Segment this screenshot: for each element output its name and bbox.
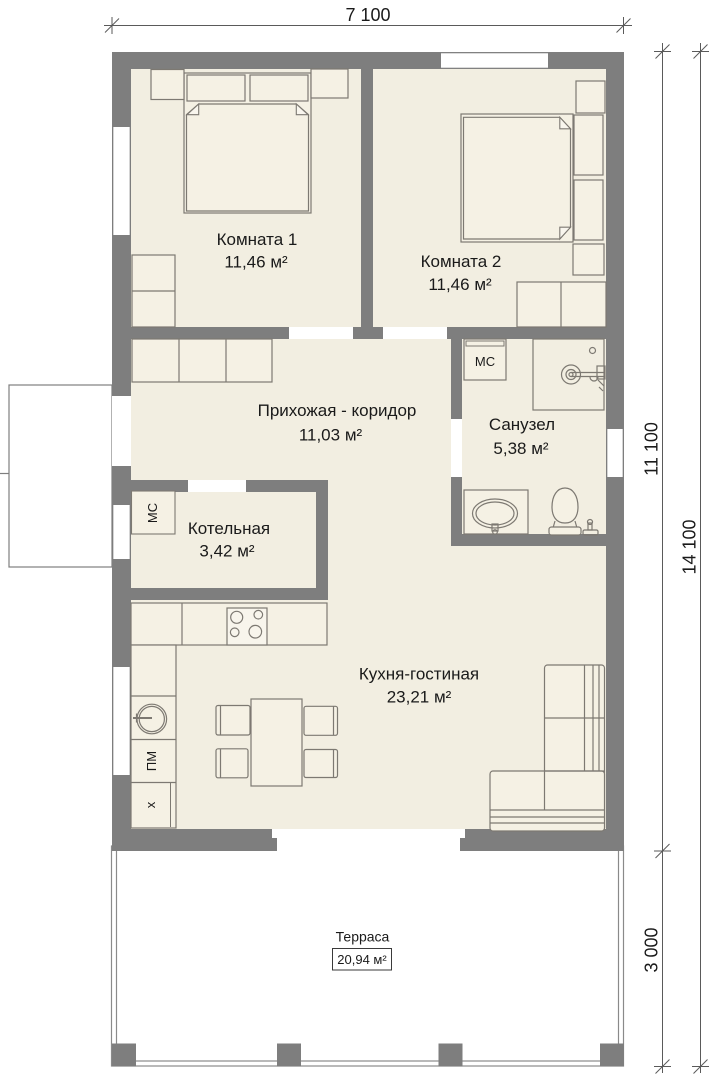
svg-text:7 100: 7 100 [345, 5, 390, 25]
svg-text:Комната 1: Комната 1 [217, 230, 298, 249]
svg-text:Терраса: Терраса [336, 929, 390, 945]
svg-text:3,42 м²: 3,42 м² [199, 542, 254, 561]
svg-text:11,03 м²: 11,03 м² [299, 426, 363, 445]
svg-text:МС: МС [145, 503, 160, 523]
svg-text:20,94 м²: 20,94 м² [337, 952, 387, 967]
svg-text:х: х [143, 801, 158, 808]
svg-text:11,46 м²: 11,46 м² [224, 253, 288, 272]
svg-text:Санузел: Санузел [489, 415, 555, 434]
svg-text:11 100: 11 100 [642, 422, 662, 476]
svg-text:Кухня-гостиная: Кухня-гостиная [359, 665, 479, 684]
svg-text:3 000: 3 000 [642, 927, 662, 972]
svg-text:МС: МС [475, 354, 495, 369]
svg-text:23,21 м²: 23,21 м² [387, 688, 452, 707]
svg-text:Котельная: Котельная [188, 519, 270, 538]
svg-text:Комната 2: Комната 2 [421, 252, 502, 271]
svg-text:5,38 м²: 5,38 м² [493, 439, 548, 458]
svg-text:Прихожая - коридор: Прихожая - коридор [258, 401, 417, 420]
svg-text:14 100: 14 100 [680, 519, 700, 574]
svg-text:ПМ: ПМ [144, 751, 159, 771]
svg-text:11,46 м²: 11,46 м² [428, 275, 492, 294]
